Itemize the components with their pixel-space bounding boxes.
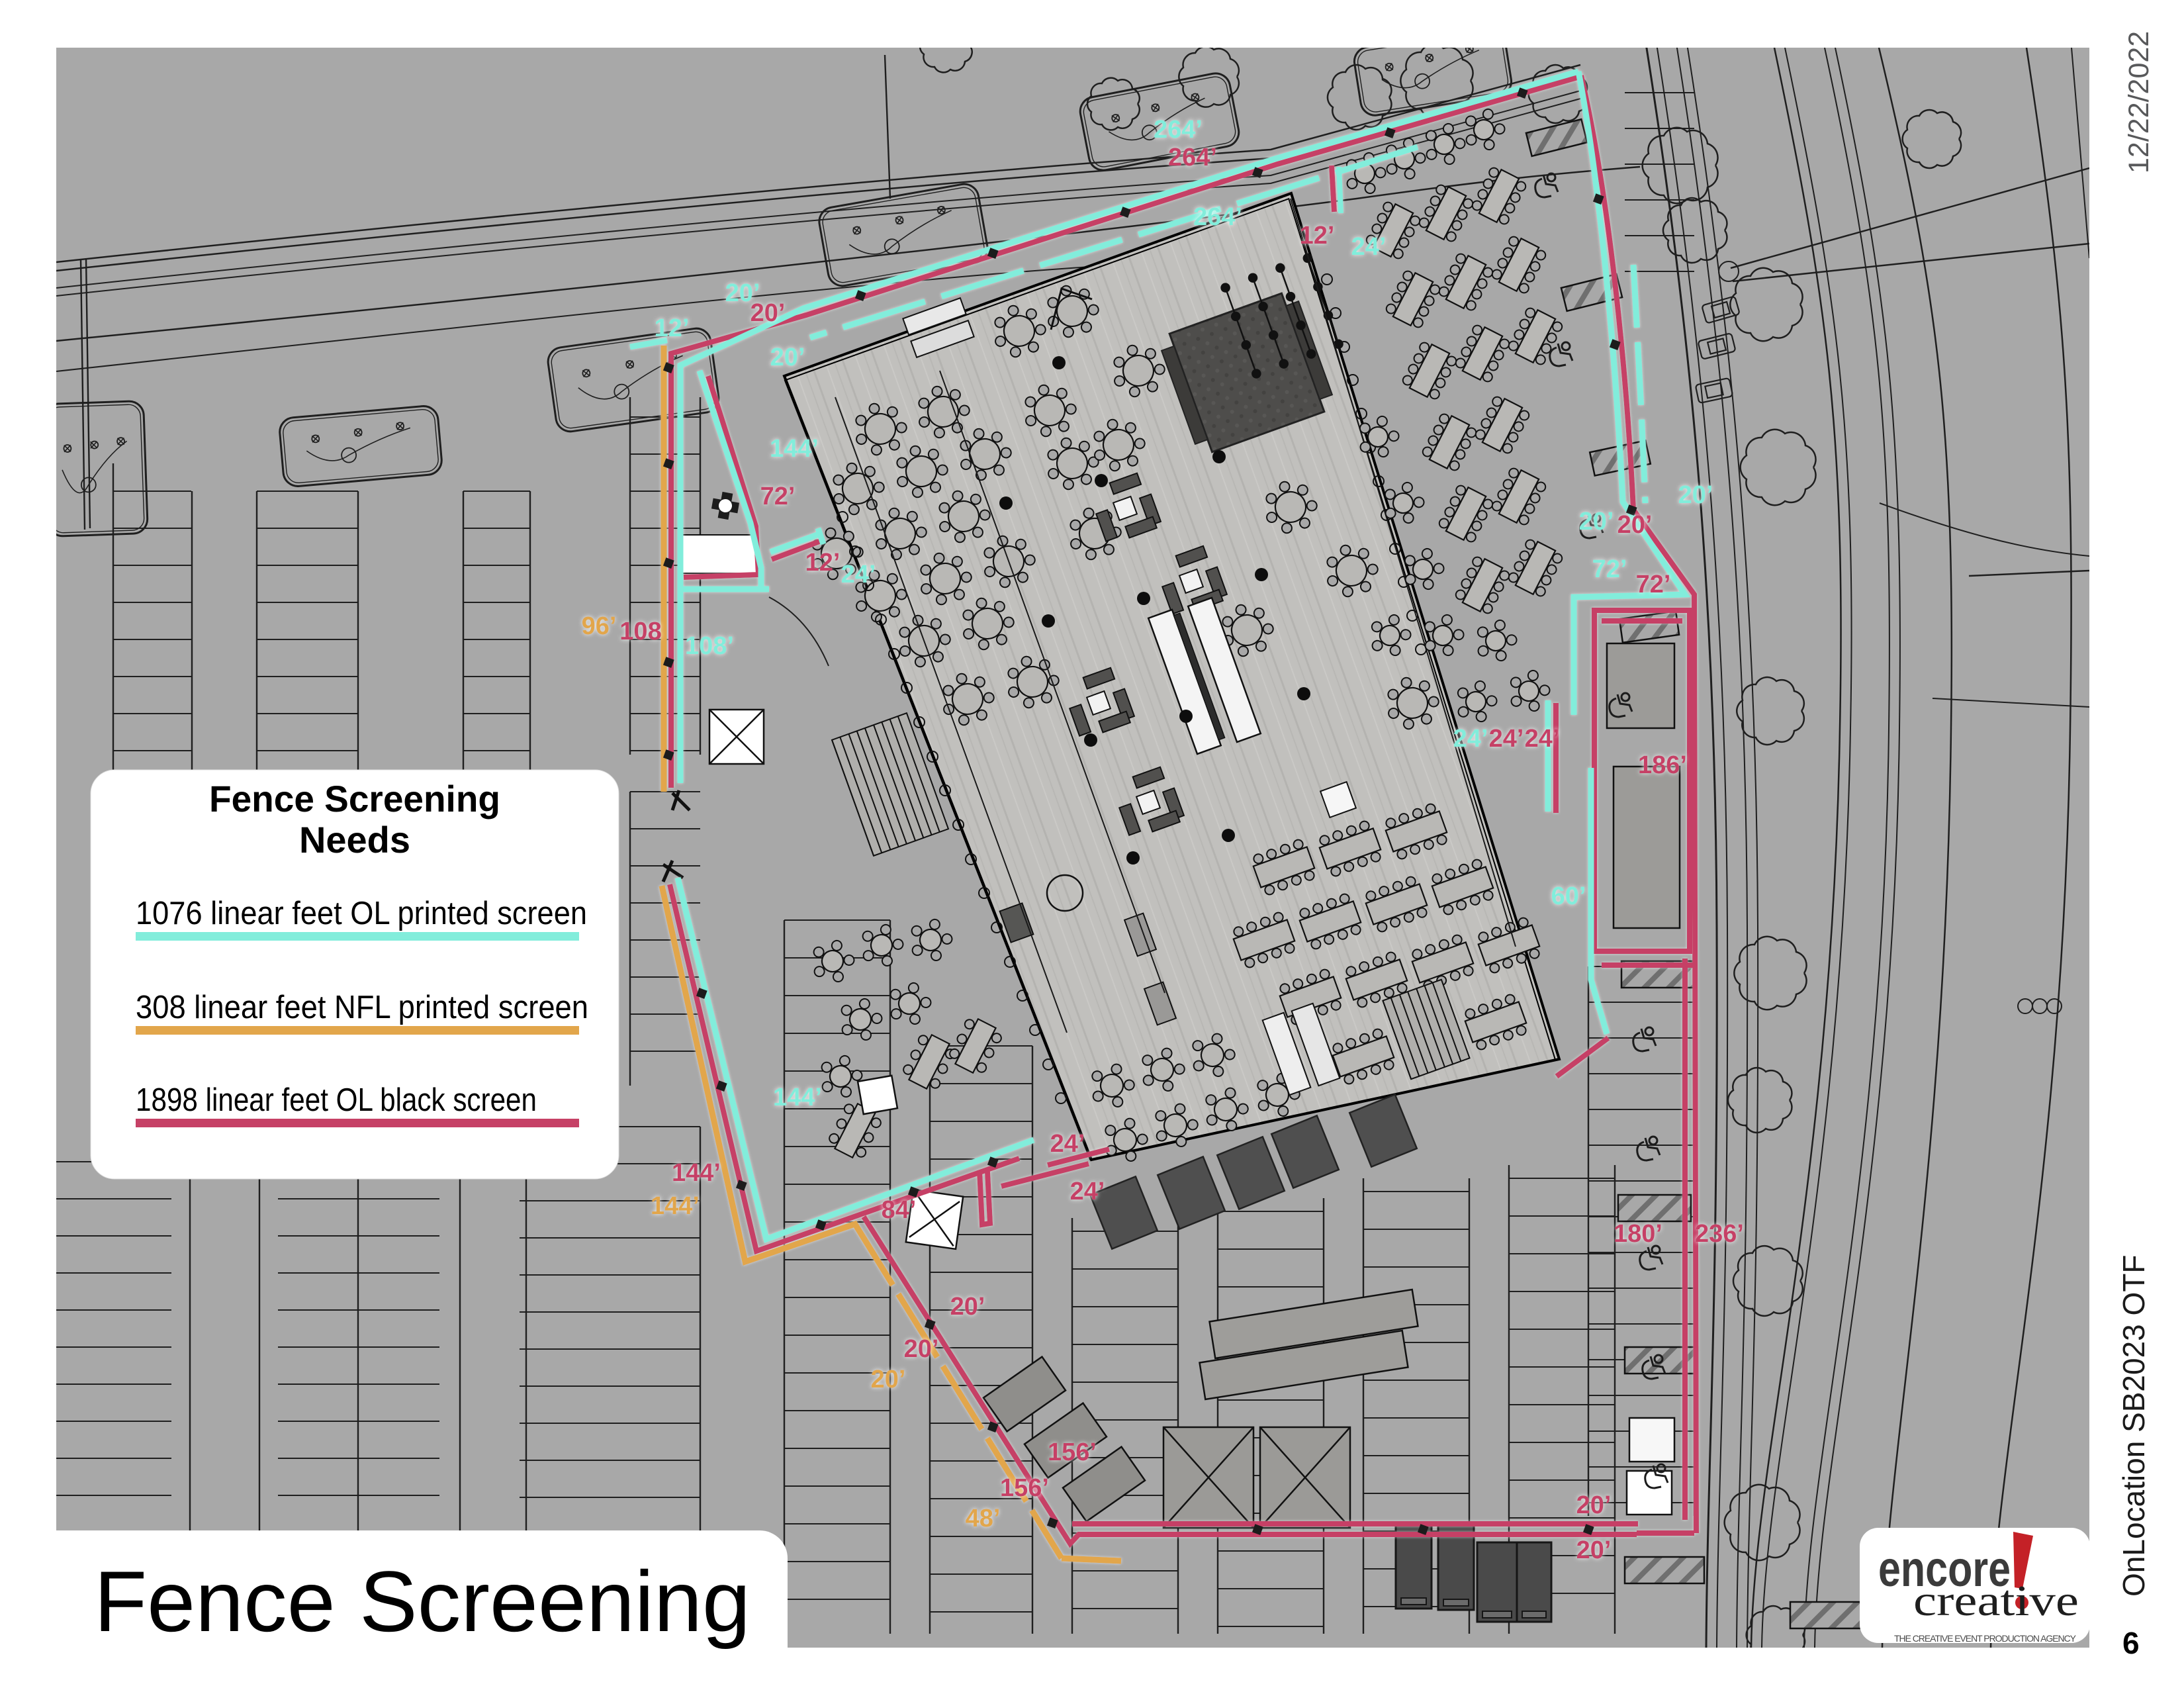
svg-text:264’: 264’	[1154, 116, 1203, 144]
svg-text:20’: 20’	[871, 1366, 906, 1393]
svg-text:1076 linear feet OL printed sc: 1076 linear feet OL printed screen	[136, 896, 587, 931]
svg-text:20’: 20’	[904, 1335, 939, 1363]
svg-text:12’: 12’	[1300, 222, 1335, 250]
svg-text:Fence Screening: Fence Screening	[94, 1553, 751, 1650]
svg-text:144’: 144’	[672, 1159, 721, 1187]
svg-text:24’: 24’	[841, 561, 876, 588]
svg-text:24’: 24’	[1050, 1130, 1085, 1158]
svg-text:108’: 108’	[685, 632, 734, 660]
svg-text:24’: 24’	[1489, 725, 1524, 753]
svg-text:72’: 72’	[1592, 555, 1627, 583]
svg-text:24’: 24’	[1351, 233, 1387, 261]
svg-text:12’: 12’	[805, 549, 841, 577]
svg-text:Fence Screening: Fence Screening	[209, 778, 500, 820]
svg-text:OnLocation SB2023 OTF: OnLocation SB2023 OTF	[2116, 1254, 2151, 1597]
svg-text:12/22/2022: 12/22/2022	[2123, 31, 2155, 173]
svg-text:144’: 144’	[651, 1192, 700, 1220]
svg-text:144’: 144’	[773, 1084, 822, 1111]
svg-text:12’: 12’	[655, 314, 690, 342]
svg-text:186’: 186’	[1638, 751, 1687, 779]
svg-text:20’: 20’	[1576, 1536, 1612, 1564]
svg-text:24’: 24’	[1070, 1178, 1105, 1205]
svg-text:20’: 20’	[1576, 1491, 1612, 1519]
svg-text:24’: 24’	[1525, 725, 1560, 753]
svg-text:20’: 20’	[1617, 511, 1653, 539]
svg-text:180’: 180’	[1614, 1220, 1662, 1248]
svg-text:1898 linear feet OL black scre: 1898 linear feet OL black screen	[136, 1082, 537, 1118]
svg-text:20’: 20’	[1678, 481, 1713, 509]
svg-text:THE CREATIVE EVENT PRODUCTION: THE CREATIVE EVENT PRODUCTION AGENCY	[1894, 1633, 2077, 1644]
svg-text:Needs: Needs	[299, 819, 410, 861]
svg-text:84’: 84’	[882, 1196, 917, 1224]
svg-text:108: 108	[619, 618, 661, 645]
svg-text:156’: 156’	[1048, 1438, 1097, 1466]
svg-text:20’: 20’	[770, 344, 805, 371]
svg-text:creative: creative	[1913, 1577, 2079, 1625]
svg-text:72’: 72’	[1636, 571, 1671, 598]
svg-text:156’: 156’	[1000, 1474, 1049, 1502]
svg-text:20’: 20’	[950, 1293, 985, 1321]
svg-text:264’: 264’	[1168, 144, 1217, 171]
svg-text:6: 6	[2122, 1626, 2140, 1660]
svg-text:236’: 236’	[1695, 1220, 1744, 1248]
svg-text:24’: 24’	[1453, 725, 1488, 753]
svg-text:96’: 96’	[582, 612, 617, 640]
svg-text:20’: 20’	[751, 299, 786, 327]
svg-text:72’: 72’	[760, 483, 796, 510]
svg-text:48’: 48’	[966, 1505, 1001, 1532]
svg-text:264’: 264’	[1193, 203, 1242, 231]
svg-text:144’: 144’	[770, 435, 819, 463]
svg-text:20’: 20’	[1579, 508, 1614, 536]
svg-text:308 linear feet NFL printed sc: 308 linear feet NFL printed screen	[136, 990, 588, 1025]
svg-text:60’: 60’	[1551, 882, 1586, 910]
